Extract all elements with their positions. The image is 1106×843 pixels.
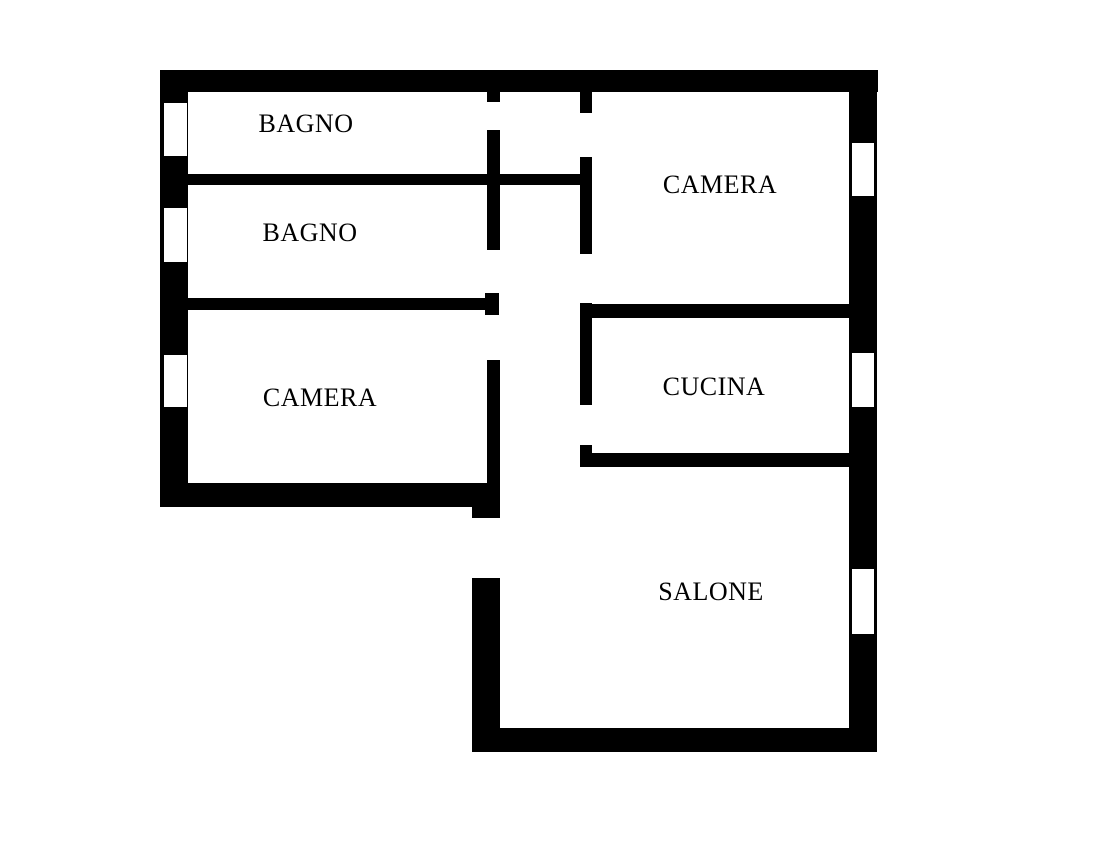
room-label-camera-right: CAMERA bbox=[663, 172, 777, 198]
hall-wall-right-upper bbox=[580, 157, 592, 254]
hall-wall-left-stub-top bbox=[487, 92, 500, 102]
room-label-bagno-2: BAGNO bbox=[263, 220, 358, 246]
exterior-wall-bottom-camera bbox=[160, 483, 500, 507]
hall-wall-left-lower bbox=[487, 360, 500, 483]
door-camera-right-vestibule bbox=[580, 113, 592, 157]
room-label-salone: SALONE bbox=[658, 579, 764, 605]
hall-wall-right-stub-top bbox=[580, 92, 592, 113]
hall-wall-right-cucina bbox=[580, 303, 592, 405]
room-label-bagno-1: BAGNO bbox=[259, 111, 354, 137]
window-bagno-1 bbox=[164, 103, 187, 156]
door-camera-left bbox=[487, 315, 500, 360]
window-camera-right bbox=[852, 143, 874, 196]
window-camera-left bbox=[164, 355, 187, 407]
window-salone bbox=[852, 569, 874, 634]
room-label-cucina: CUCINA bbox=[663, 374, 766, 400]
window-cucina bbox=[852, 353, 874, 407]
exterior-wall-bottom-salone bbox=[472, 728, 877, 752]
door-camera-right-corridor bbox=[580, 254, 592, 303]
divider-bagno1-bagno2 bbox=[188, 174, 592, 185]
hall-wall-right-stub-bottom bbox=[580, 445, 592, 467]
door-bagno-2 bbox=[487, 250, 500, 293]
hall-wall-left-stub-mid bbox=[485, 293, 499, 315]
door-cucina bbox=[580, 405, 592, 445]
exterior-wall-left-salone bbox=[472, 578, 500, 728]
divider-cucina-salone bbox=[580, 453, 849, 467]
entrance-jamb-upper bbox=[472, 507, 500, 518]
divider-camera-cucina bbox=[580, 304, 849, 318]
floor-plan: BAGNOBAGNOCAMERACAMERACUCINASALONE bbox=[0, 0, 1106, 843]
divider-bagno2-camera bbox=[188, 298, 485, 310]
main-entrance-opening bbox=[472, 518, 500, 578]
exterior-wall-top bbox=[160, 70, 878, 92]
room-label-camera-left: CAMERA bbox=[263, 385, 377, 411]
window-bagno-2 bbox=[164, 208, 187, 262]
hall-wall-left-upper bbox=[487, 130, 500, 250]
door-bagno-1 bbox=[487, 102, 500, 130]
